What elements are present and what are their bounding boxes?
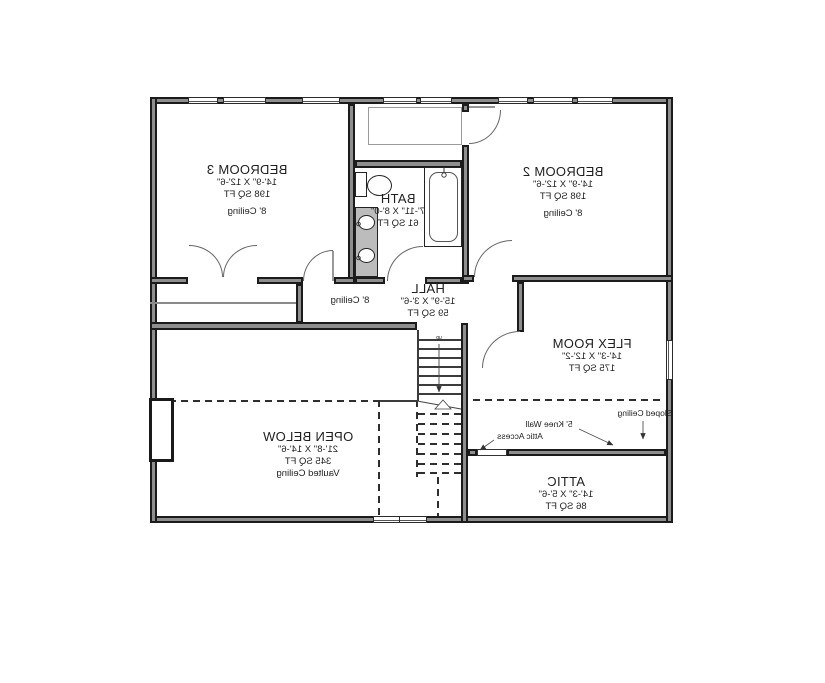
room-area: 198 SQ FT [207,189,288,201]
open-below-boundary-top [174,400,380,402]
sink-2 [358,248,375,263]
room-name: BEDROOM 3 [207,162,288,177]
room-area: 175 SQ FT [552,363,631,375]
stair-tread [419,384,461,386]
attic-access-hatch [477,449,507,456]
room-ceiling: 8' Ceiling [523,208,604,220]
wall-closet-end [296,284,303,323]
door-arc-bedroom2-closet [469,110,501,144]
stair-tread [419,393,461,395]
door-arc-bedroom2-entry [474,240,512,277]
wall-bedroom3-bottom-b [257,277,303,284]
room-area: 345 SQ FT [263,456,353,468]
exterior-wall-left [666,97,673,523]
room-name: BATH [371,191,425,206]
sloped-ceiling-line [470,399,660,401]
door-arc-bedroom3-closet-right [189,245,223,277]
knee-wall-arrow [579,429,613,445]
room-area: 198 SQ FT [523,191,604,203]
knee-wall-label: 5' Knee Wall [525,419,572,429]
stair-tread-below [417,453,461,455]
window-bedroom3-2 [223,97,266,104]
room-dims: 14'-9" X 12'-6" [207,177,288,189]
room-dims: 21'-8" X 14'-6" [263,444,353,456]
stair-tread-below [417,443,461,445]
window-stairwell [373,516,427,523]
stair-tread-below [417,433,461,435]
room-label-bath: BATH 7'-11" X 8'-0" 61 SQ FT [371,191,425,230]
room-name: OPEN BELOW [263,429,353,444]
wall-bedroom2-bottom-b [462,275,474,282]
wall-stair [461,323,468,523]
wall-flex-stub [517,282,524,332]
wall-bedroom3-bottom-c [150,277,188,284]
window-bedroom3-1 [188,97,218,104]
room-dims: 14'-3" X 5'-6" [539,489,594,501]
toilet-tank [355,172,367,197]
window-landing-1 [383,97,417,104]
wall-attic-top-b [468,449,477,456]
wall-hall-bottom [150,322,417,330]
room-label-open-below: OPEN BELOW 21'-8" X 14'-6" 345 SQ FT Vau… [263,429,353,480]
sloped-ceiling-label: Sloped Ceiling [618,408,673,418]
wall-bath-bedroom2 [462,145,469,284]
stair-direction-label: up [436,336,442,341]
room-label-flex: FLEX ROOM 14'-3" X 12'-2" 175 SQ FT [552,336,631,375]
window-bedroom2-1 [498,97,528,104]
room-name: HALL [401,281,456,296]
wall-bath-bedroom2-stub-top [462,104,469,112]
wall-bedroom3-bath [348,104,355,284]
floor-plan-mirrored: BEDROOM 3 14'-9" X 12'-6" 198 SQ FT 8' C… [0,0,825,683]
wall-bedroom2-bottom-a [512,275,673,282]
chimney-chase [149,398,174,462]
stair-break-mark [435,400,451,409]
attic-access-label: Attic Access [497,431,543,441]
room-dims: 15'-9" X 3'-6" [401,296,456,308]
room-area: 86 SQ FT [539,501,594,513]
window-landing-2 [420,97,452,104]
stair-tread-below [417,413,461,415]
open-below-boundary-side [379,400,381,516]
stair-tread-below [417,463,461,465]
stair-landing-line [380,400,418,402]
room-ceiling: 8' Ceiling [207,206,288,218]
wall-bath-bottom-b [355,277,385,284]
door-arc-bath-entry [387,246,423,281]
room-dims: 14'-3" X 12'-2" [552,351,631,363]
hall-ceiling-label: 8' Ceiling [331,295,370,307]
wall-attic-top-a [507,449,666,456]
window-bedroom2-3 [577,97,613,104]
stair-tread [419,357,461,359]
stair-tread-below [417,423,461,425]
room-name: BEDROOM 2 [523,164,604,179]
window-bedroom3-3 [302,97,340,104]
room-label-bedroom3: BEDROOM 3 14'-9" X 12'-6" 198 SQ FT 8' C… [207,162,288,218]
room-dims: 14'-9" X 12'-6" [523,179,604,191]
room-area: 59 SQ FT [401,308,456,320]
window-flex [666,340,673,380]
door-arc-flex-entry [482,331,520,368]
closet-rod-bedroom3 [150,302,296,304]
closet-shelf-bedroom2 [368,107,462,145]
stair-tread [419,366,461,368]
room-area: 61 SQ FT [371,218,425,230]
stair-tread [419,348,461,350]
room-label-bedroom2: BEDROOM 2 14'-9" X 12'-6" 198 SQ FT 8' C… [523,164,604,220]
stair-tread-below [417,472,461,474]
room-dims: 7'-11" X 8'-0" [371,206,425,218]
stair-dashed-center [438,477,440,516]
stair-break-line [417,401,461,409]
wall-bedroom3-bottom-a [334,277,355,284]
stair-tread [419,375,461,377]
room-name: ATTIC [539,474,594,489]
room-label-attic: ATTIC 14'-3" X 5'-6" 86 SQ FT [539,474,594,513]
floor-plan-canvas: BEDROOM 3 14'-9" X 12'-6" 198 SQ FT 8' C… [0,0,825,683]
room-ceiling: Vaulted Ceiling [263,468,353,480]
stair-dashed-edge [417,400,419,477]
door-arc-bedroom3-entry [303,250,333,281]
door-arc-bedroom3-closet-left [223,245,257,277]
window-bedroom2-2 [533,97,573,104]
room-label-hall: HALL 15'-9" X 3'-6" 59 SQ FT [401,281,456,320]
room-name: FLEX ROOM [552,336,631,351]
bathtub-inner [429,172,458,242]
